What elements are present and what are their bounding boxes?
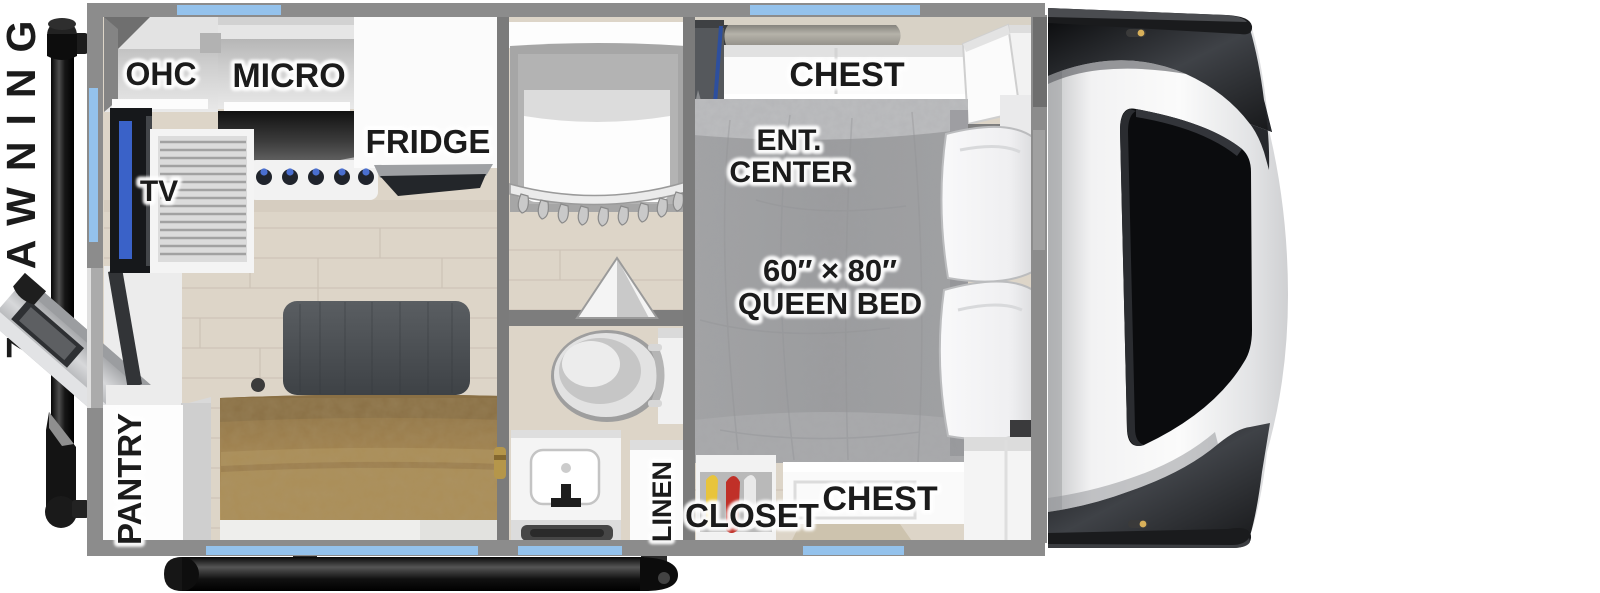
- svg-text:OHC: OHC: [125, 56, 196, 92]
- svg-text:QUEEN BED: QUEEN BED: [738, 286, 922, 321]
- svg-text:60″ × 80″: 60″ × 80″: [763, 253, 897, 288]
- svg-text:TV: TV: [140, 175, 178, 208]
- svg-text:CHEST: CHEST: [822, 480, 937, 518]
- svg-text:ENT.: ENT.: [756, 124, 821, 157]
- svg-text:FRIDGE: FRIDGE: [366, 123, 491, 160]
- svg-text:CLOSET: CLOSET: [685, 497, 819, 534]
- svg-text:CHEST: CHEST: [789, 56, 904, 94]
- svg-text:CENTER: CENTER: [729, 156, 853, 189]
- svg-text:LINEN: LINEN: [647, 461, 677, 542]
- svg-text:PANTRY: PANTRY: [111, 413, 148, 545]
- svg-text:MICRO: MICRO: [232, 57, 345, 95]
